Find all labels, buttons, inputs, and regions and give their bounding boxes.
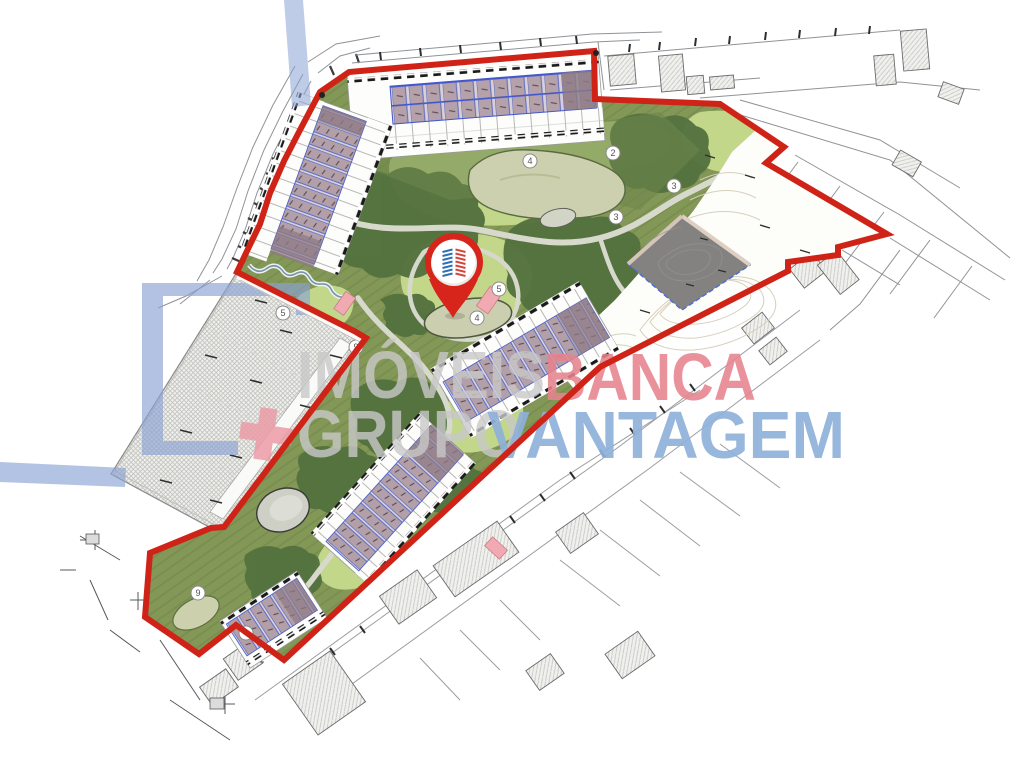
svg-text:4: 4 <box>474 313 479 323</box>
svg-text:5: 5 <box>280 308 285 318</box>
svg-text:5: 5 <box>496 284 501 294</box>
svg-text:3: 3 <box>613 212 618 222</box>
svg-text:2: 2 <box>610 148 615 158</box>
svg-text:9: 9 <box>195 588 200 598</box>
svg-text:4: 4 <box>527 156 532 166</box>
svg-text:3: 3 <box>671 181 676 191</box>
svg-text:VANTAGEM: VANTAGEM <box>487 398 845 473</box>
